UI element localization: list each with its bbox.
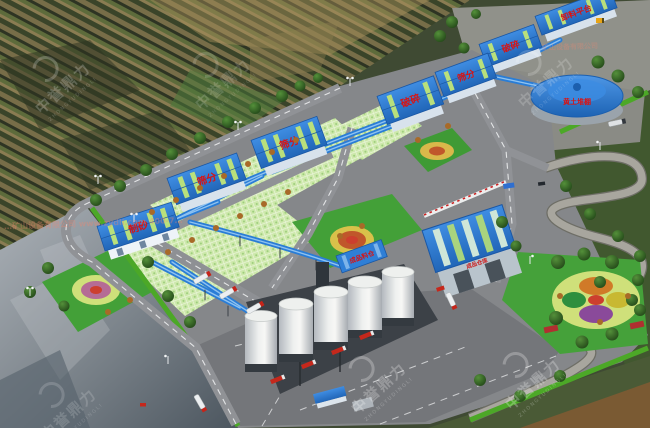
silo bbox=[348, 276, 382, 338]
clay-dome-building: 黄土堆棚 bbox=[531, 75, 623, 125]
scene-svg: 黄土堆棚 卸料平台 破碎 筛分 破碎 筛分 bbox=[0, 0, 650, 428]
plant-aerial-rendering: 黄土堆棚 卸料平台 破碎 筛分 破碎 筛分 bbox=[0, 0, 650, 428]
silo bbox=[314, 286, 348, 350]
silo bbox=[245, 311, 277, 373]
silo bbox=[382, 267, 414, 327]
silo bbox=[279, 298, 313, 362]
roof-label: 黄土堆棚 bbox=[563, 97, 591, 106]
